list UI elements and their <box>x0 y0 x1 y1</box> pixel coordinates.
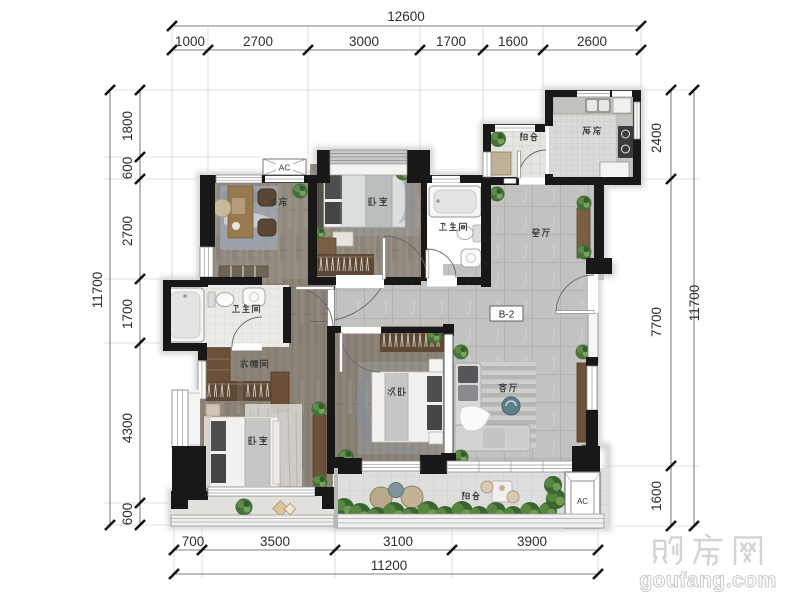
svg-text:2700: 2700 <box>120 216 135 246</box>
svg-text:B-2: B-2 <box>499 310 515 321</box>
svg-text:3500: 3500 <box>260 534 290 549</box>
svg-text:2600: 2600 <box>577 34 607 49</box>
svg-text:3000: 3000 <box>349 34 379 49</box>
svg-text:1800: 1800 <box>120 111 135 141</box>
svg-text:4300: 4300 <box>120 413 135 443</box>
svg-text:600: 600 <box>120 157 135 180</box>
svg-text:11700: 11700 <box>90 272 105 309</box>
svg-text:AC: AC <box>577 497 588 506</box>
svg-text:goufang.com: goufang.com <box>639 569 776 592</box>
svg-text:600: 600 <box>120 503 135 526</box>
svg-text:1600: 1600 <box>498 34 528 49</box>
svg-text:2700: 2700 <box>243 34 273 49</box>
svg-text:3900: 3900 <box>517 534 547 549</box>
svg-text:11700: 11700 <box>687 285 702 322</box>
svg-text:AC: AC <box>279 163 291 173</box>
svg-text:1700: 1700 <box>436 34 466 49</box>
svg-text:3100: 3100 <box>383 534 413 549</box>
svg-text:2400: 2400 <box>649 123 664 153</box>
svg-text:7700: 7700 <box>649 307 664 337</box>
svg-text:12600: 12600 <box>387 9 425 24</box>
svg-text:700: 700 <box>182 534 205 549</box>
svg-text:11200: 11200 <box>371 558 408 573</box>
svg-text:1600: 1600 <box>649 481 664 511</box>
svg-text:1000: 1000 <box>175 34 205 49</box>
svg-text:1700: 1700 <box>120 299 135 329</box>
